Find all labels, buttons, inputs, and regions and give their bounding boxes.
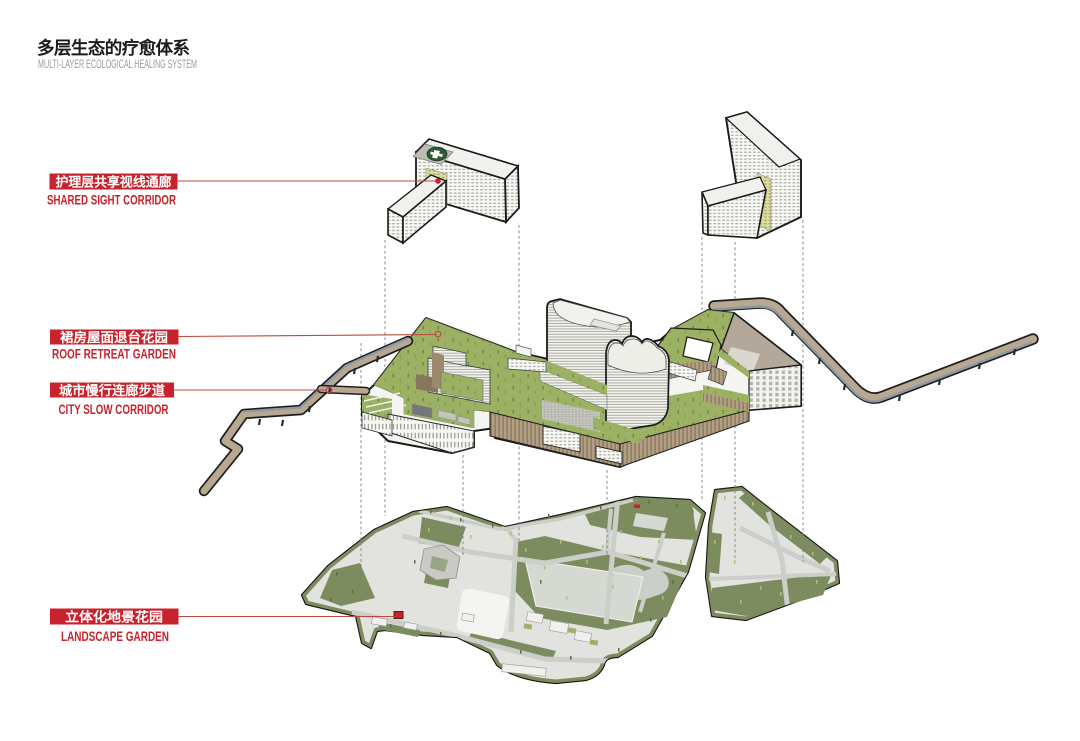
svg-text:LANDSCAPE GARDEN: LANDSCAPE GARDEN <box>61 629 169 644</box>
svg-text:MULTI-LAYER ECOLOGICAL HEALING: MULTI-LAYER ECOLOGICAL HEALING SYSTEM <box>38 57 197 71</box>
svg-text:城市慢行连廊步道: 城市慢行连廊步道 <box>59 383 165 398</box>
svg-text:ROOF RETREAT GARDEN: ROOF RETREAT GARDEN <box>52 347 176 362</box>
svg-text:裙房屋面退台花园: 裙房屋面退台花园 <box>60 330 168 345</box>
svg-text:立体化地景花园: 立体化地景花园 <box>65 610 163 625</box>
svg-text:SHARED SIGHT CORRIDOR: SHARED SIGHT CORRIDOR <box>47 193 176 208</box>
svg-text:多层生态的疗愈体系: 多层生态的疗愈体系 <box>37 38 190 58</box>
svg-text:护理层共享视线通廊: 护理层共享视线通廊 <box>56 175 172 190</box>
svg-text:CITY SLOW CORRIDOR: CITY SLOW CORRIDOR <box>59 402 169 417</box>
